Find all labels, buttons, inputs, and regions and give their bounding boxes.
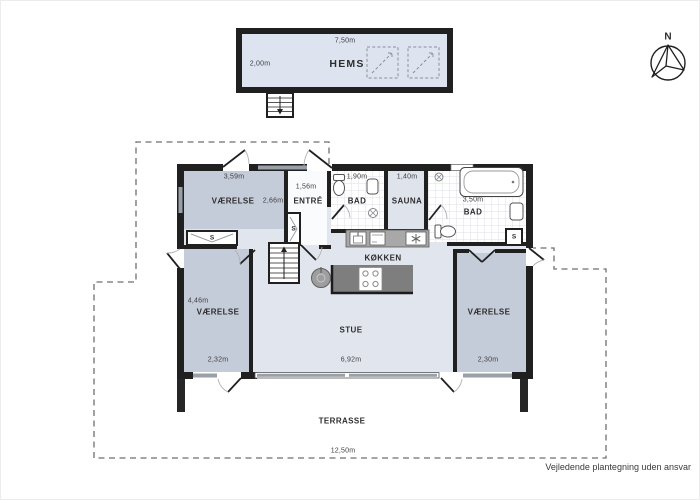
- vaerelse-nw-dim-depth: 2,66m: [263, 198, 283, 205]
- hems-dim-depth: 2,00m: [250, 61, 270, 68]
- room-label-bad-small: BAD: [348, 197, 367, 206]
- vaerelse-nw-dim-width: 3,59m: [224, 174, 244, 181]
- room-label-stue: STUE: [340, 326, 363, 335]
- room-label-koekken: KØKKEN: [364, 254, 401, 263]
- bad-large-dim-width: 3,50m: [463, 197, 483, 204]
- terrasse-dim-width: 12,50m: [331, 448, 356, 455]
- bad-small-dim-width: 1,90m: [347, 174, 367, 181]
- terrace-posts: [177, 379, 528, 412]
- closet-label-2: S: [291, 226, 295, 233]
- north-arrow-icon: [651, 45, 685, 80]
- entre-dim-width: 1,56m: [296, 184, 316, 191]
- room-label-vaerelse-w: VÆRELSE: [197, 308, 240, 317]
- closet-label-1: S: [210, 235, 214, 242]
- stue-dim-width: 6,92m: [341, 357, 361, 364]
- vaerelse-w-dim-width: 2,32m: [208, 357, 228, 364]
- room-label-vaerelse-e: VÆRELSE: [468, 308, 511, 317]
- sauna-dim-width: 1,40m: [397, 174, 417, 181]
- room-label-terrasse: TERRASSE: [319, 417, 366, 426]
- floor-plan-page: 7,50m 2,00m HEMS N 3,59m VÆRELSE 2,66m 1…: [0, 0, 700, 500]
- hems-stairs: [267, 93, 293, 117]
- vaerelse-w-dim-depth: 4,46m: [188, 298, 208, 305]
- closet-label-3: S: [512, 234, 516, 241]
- kitchen-counter: [346, 230, 429, 247]
- room-label-entre: ENTRÉ: [293, 197, 322, 206]
- main-stairs: [269, 243, 299, 283]
- room-label-sauna: SAUNA: [392, 197, 422, 206]
- north-label: N: [664, 32, 671, 43]
- vaerelse-e-dim-width: 2,30m: [478, 357, 498, 364]
- hems-dim-width: 7,50m: [335, 38, 355, 45]
- room-label-bad-large: BAD: [464, 208, 483, 217]
- room-label-hems: HEMS: [329, 58, 364, 70]
- room-label-vaerelse-nw: VÆRELSE: [212, 197, 255, 206]
- disclaimer-text: Vejledende plantegning uden ansvar: [545, 462, 691, 472]
